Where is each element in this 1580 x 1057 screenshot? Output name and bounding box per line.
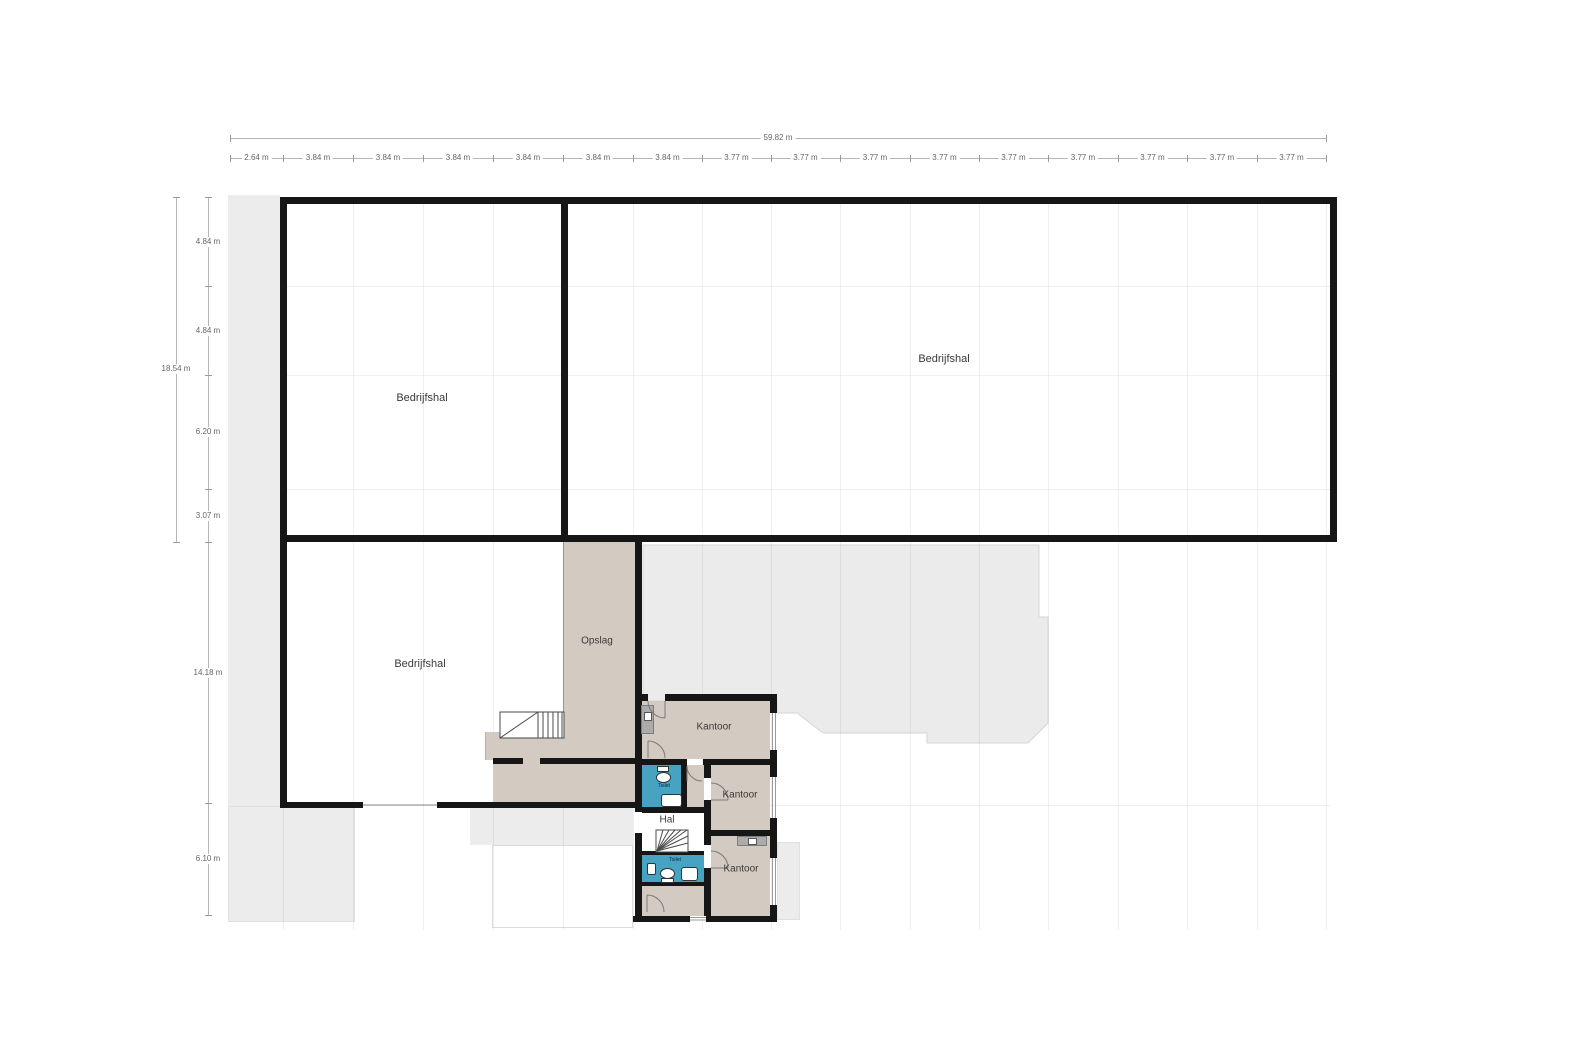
stairs-office [656,830,688,852]
dim-tick [205,286,212,287]
dim-label: 3.84 m [513,153,543,163]
dim-tick [205,542,212,543]
dim-label: 2.64 m [241,153,271,163]
dim-label-top-total: 59.82 m [761,133,796,143]
room-label-bedrijfshal-right: Bedrijfshal [918,353,969,365]
dim-label: 3.84 m [373,153,403,163]
dim-tick [1118,155,1119,162]
room-label-bedrijfshal-left: Bedrijfshal [396,392,447,404]
room-label-kantoor-top: Kantoor [696,722,731,733]
dim-label: 3.77 m [998,153,1028,163]
dim-label: 3.84 m [583,153,613,163]
dim-label: 3.77 m [790,153,820,163]
dim-label: 6.10 m [193,854,223,864]
dim-label: 14.18 m [191,668,226,678]
dim-label: 4.84 m [193,326,223,336]
dim-tick [771,155,772,162]
room-label-kantoor-bottom: Kantoor [723,864,758,875]
room-label-opslag: Opslag [581,636,613,647]
dim-label: 3.77 m [860,153,890,163]
dim-tick [1048,155,1049,162]
dim-tick [423,155,424,162]
room-label-kantoor-middle: Kantoor [722,790,757,801]
dim-label: 3.77 m [1207,153,1237,163]
room-label-toilet-upper: Toilet [658,783,670,788]
window-glazing [690,713,776,920]
floorplan-canvas: Bedrijfshal Bedrijfshal Bedrijfshal Opsl… [0,0,1580,1057]
dim-tick [563,155,564,162]
dim-tick [283,155,284,162]
dim-tick [702,155,703,162]
dim-label: 3.84 m [303,153,333,163]
room-label-hal: Hal [659,815,674,826]
dim-line-left-segments [208,197,209,915]
room-label-toilet-lower: Toilet [669,857,681,862]
dim-tick [353,155,354,162]
dim-tick [230,135,231,142]
room-label-bedrijfshal-lower: Bedrijfshal [394,658,445,670]
dim-tick [493,155,494,162]
dim-tick [205,375,212,376]
stairs-opslag [500,712,564,738]
dim-tick [633,155,634,162]
dim-tick [910,155,911,162]
dim-label: 4.84 m [193,237,223,247]
dim-tick [173,542,180,543]
dim-tick [205,803,212,804]
dim-tick [230,155,231,162]
dim-tick [979,155,980,162]
dim-tick [1326,155,1327,162]
dim-tick [840,155,841,162]
dim-tick [1326,135,1327,142]
dim-tick [1257,155,1258,162]
dim-label: 3.77 m [1137,153,1167,163]
dim-label: 3.77 m [1276,153,1306,163]
dim-tick [173,197,180,198]
dim-label: 6.20 m [193,427,223,437]
dim-label: 3.77 m [1068,153,1098,163]
dim-label: 3.77 m [721,153,751,163]
dim-tick [1187,155,1188,162]
door-arcs [647,701,728,912]
dim-tick [205,489,212,490]
dim-label: 3.07 m [193,511,223,521]
dim-tick [205,915,212,916]
dim-label: 3.77 m [929,153,959,163]
dim-tick [205,197,212,198]
dim-label: 3.84 m [652,153,682,163]
dim-label-left-total: 18.54 m [159,364,194,374]
dim-label: 3.84 m [443,153,473,163]
